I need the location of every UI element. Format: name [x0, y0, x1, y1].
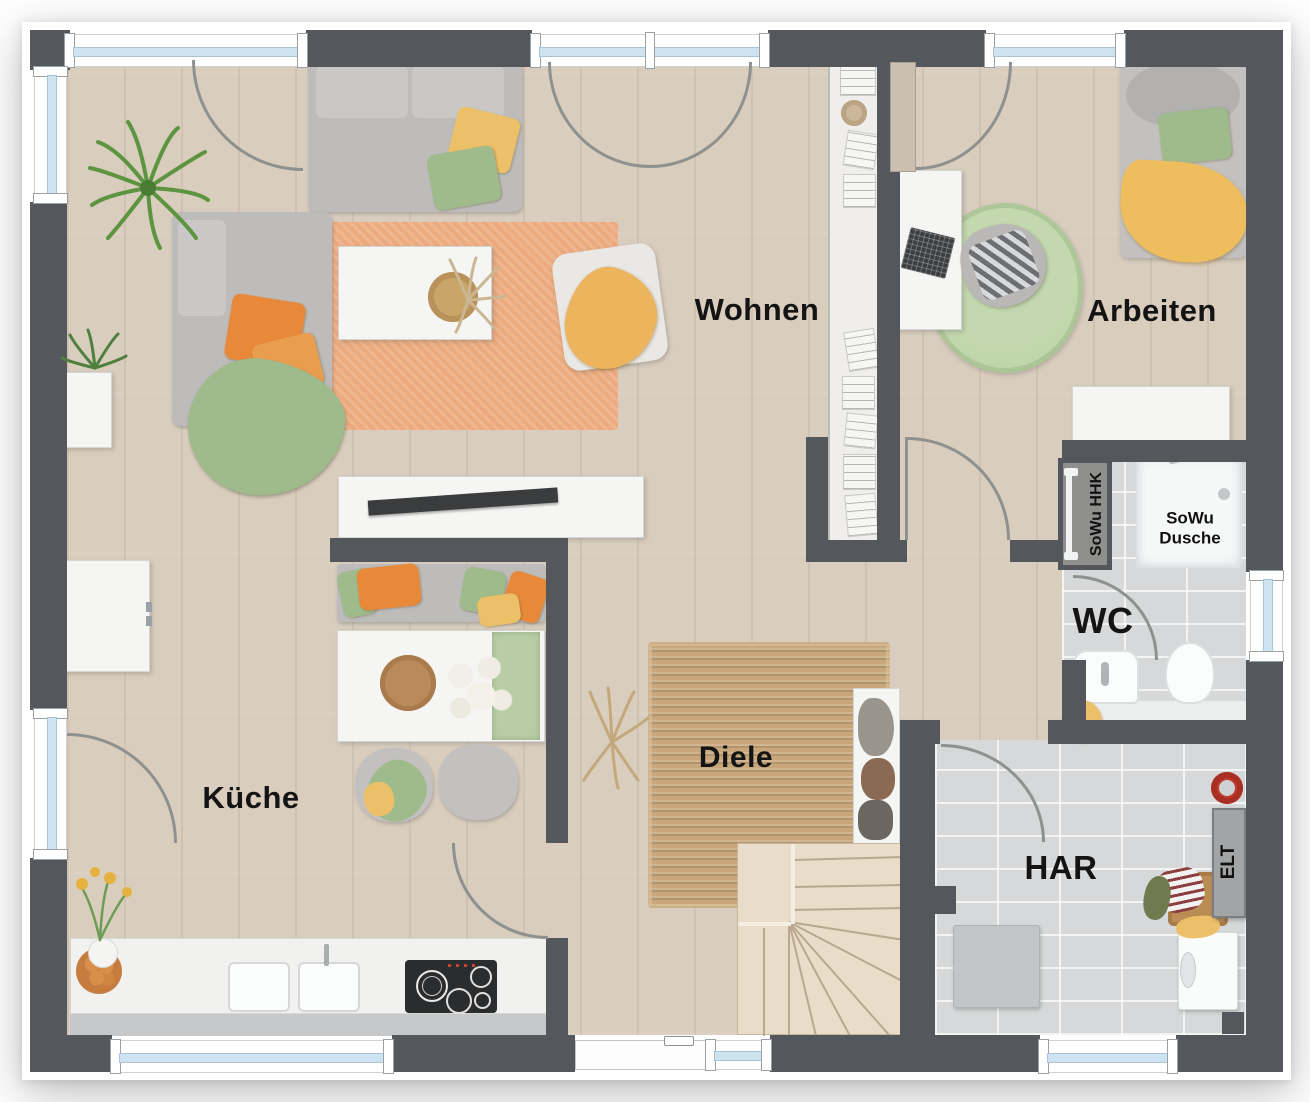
floor-plan: Wohnen Arbeiten Küche Diele WC HAR SoWuD… — [0, 0, 1310, 1102]
room-label-wc: WC — [1073, 600, 1134, 642]
plants-overlay — [0, 0, 1310, 1102]
label-shower-line1: SoWu — [1166, 508, 1214, 527]
room-label-har: HAR — [1025, 849, 1098, 887]
room-label-diele: Diele — [699, 741, 773, 775]
room-label-wohnen: Wohnen — [695, 292, 820, 328]
label-shower: SoWuDusche — [1159, 508, 1220, 547]
label-shower-line2: Dusche — [1159, 528, 1220, 547]
room-label-arbeiten: Arbeiten — [1087, 293, 1217, 329]
label-electrical: ELT — [1218, 845, 1240, 879]
label-towel-radiator: SoWu HHK — [1088, 472, 1106, 556]
room-label-kueche: Küche — [202, 780, 299, 816]
